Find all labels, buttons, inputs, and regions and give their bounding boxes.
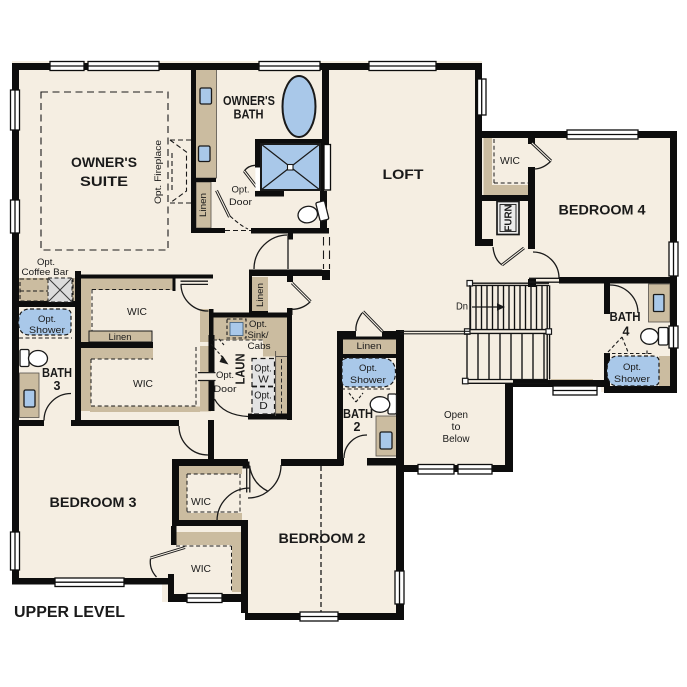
svg-text:Linen: Linen <box>255 283 266 307</box>
svg-text:Cabs: Cabs <box>248 341 271 352</box>
svg-text:UPPER LEVEL: UPPER LEVEL <box>14 604 125 621</box>
svg-text:Opt.: Opt. <box>232 185 250 196</box>
svg-text:BEDROOM 2: BEDROOM 2 <box>279 530 366 546</box>
svg-text:Opt.: Opt. <box>38 314 56 325</box>
svg-text:WIC: WIC <box>500 156 520 167</box>
svg-text:FURN: FURN <box>503 205 515 232</box>
svg-text:W: W <box>258 374 269 386</box>
svg-text:WIC: WIC <box>191 564 211 575</box>
svg-text:Shower: Shower <box>350 375 386 386</box>
svg-text:Below: Below <box>443 434 471 445</box>
svg-text:BATH: BATH <box>42 366 72 380</box>
svg-text:Linen: Linen <box>357 341 382 352</box>
svg-text:BATH: BATH <box>343 407 373 421</box>
svg-text:Door: Door <box>229 197 252 208</box>
svg-text:LAUN: LAUN <box>234 354 248 385</box>
svg-text:SUITE: SUITE <box>80 173 128 189</box>
svg-text:Linen: Linen <box>109 332 132 343</box>
svg-text:3: 3 <box>54 379 61 393</box>
svg-text:Opt.: Opt. <box>216 370 234 381</box>
svg-text:WIC: WIC <box>127 307 147 318</box>
svg-text:Opt.: Opt. <box>359 363 377 374</box>
svg-text:Shower: Shower <box>614 374 650 385</box>
svg-text:Sink/: Sink/ <box>248 330 269 341</box>
svg-text:Door: Door <box>214 384 237 395</box>
svg-text:2: 2 <box>354 420 361 434</box>
svg-text:Linen: Linen <box>198 193 209 217</box>
svg-text:WIC: WIC <box>191 497 211 508</box>
svg-text:Shower: Shower <box>29 325 65 336</box>
svg-text:OWNER'S: OWNER'S <box>71 154 137 170</box>
svg-text:Opt.: Opt. <box>249 319 267 330</box>
svg-text:D: D <box>259 400 268 412</box>
svg-text:Coffee Bar: Coffee Bar <box>22 267 69 278</box>
svg-text:Dn: Dn <box>456 302 468 313</box>
svg-text:BEDROOM 4: BEDROOM 4 <box>559 202 646 218</box>
svg-text:to: to <box>452 422 461 433</box>
svg-text:BEDROOM 3: BEDROOM 3 <box>50 494 137 510</box>
svg-text:Opt.: Opt. <box>623 362 641 373</box>
svg-text:BATH: BATH <box>234 108 264 122</box>
svg-text:Open: Open <box>444 410 468 421</box>
svg-text:OWNER'S: OWNER'S <box>223 94 275 108</box>
svg-text:WIC: WIC <box>133 379 153 390</box>
svg-text:LOFT: LOFT <box>383 166 425 182</box>
svg-text:Opt. Fireplace: Opt. Fireplace <box>153 140 164 204</box>
svg-text:4: 4 <box>623 325 630 339</box>
svg-text:BATH: BATH <box>610 310 641 324</box>
